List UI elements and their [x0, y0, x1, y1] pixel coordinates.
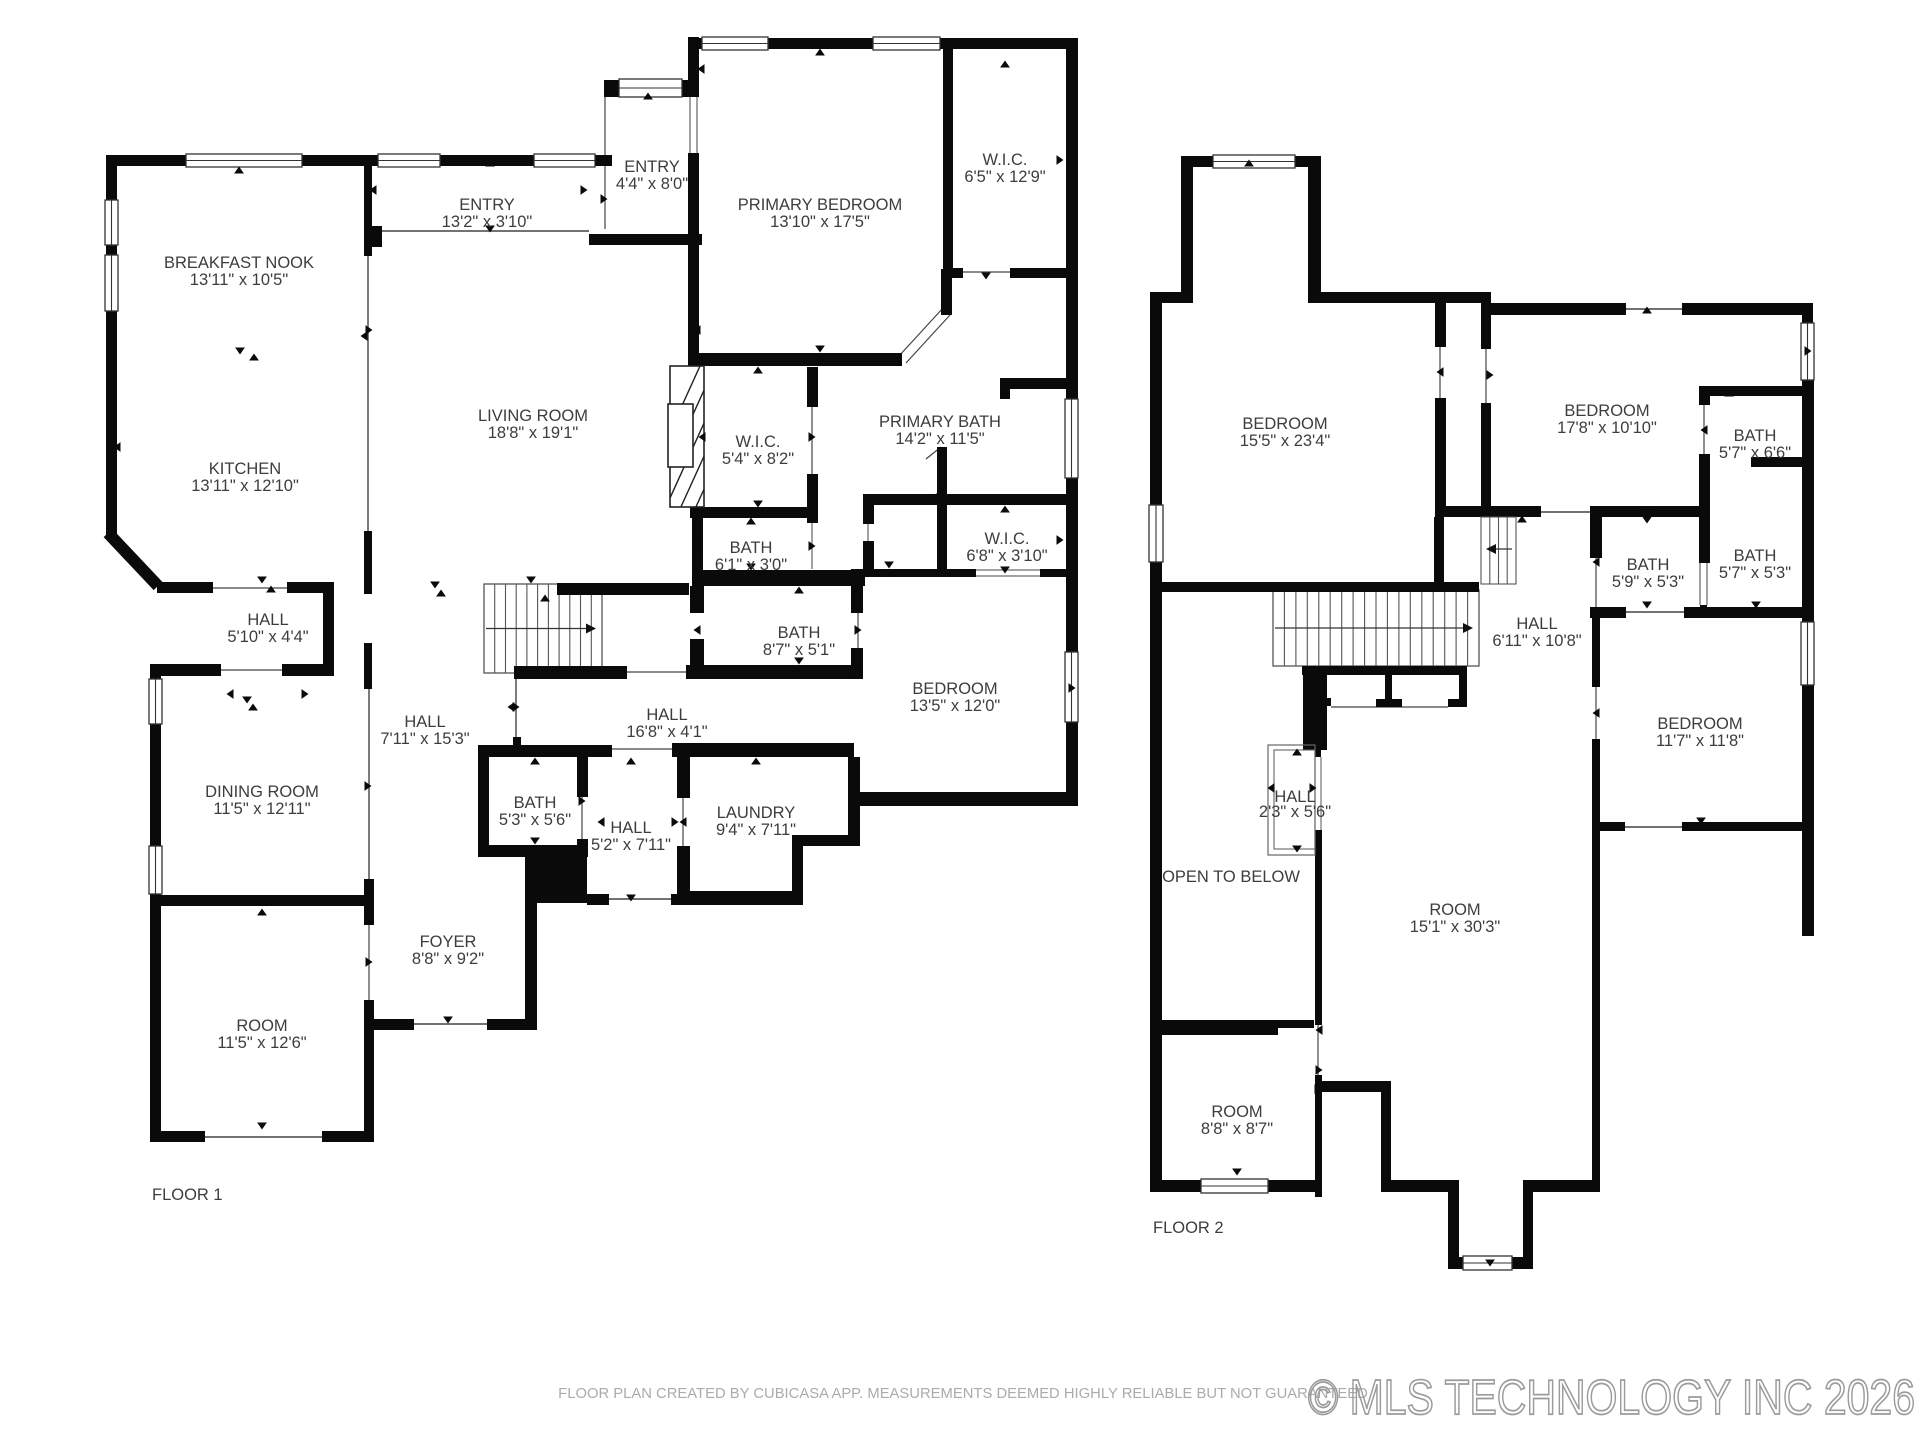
svg-text:13'11" x 10'5": 13'11" x 10'5": [190, 271, 289, 289]
svg-text:4'4" x 8'0": 4'4" x 8'0": [616, 175, 688, 193]
svg-text:KITCHEN: KITCHEN: [209, 460, 281, 478]
svg-text:FOYER: FOYER: [420, 933, 477, 951]
svg-text:FLOOR 1: FLOOR 1: [152, 1186, 223, 1204]
svg-text:13'5" x 12'0": 13'5" x 12'0": [910, 697, 1001, 715]
svg-text:HALL: HALL: [646, 706, 687, 724]
svg-text:HALL: HALL: [1516, 615, 1557, 633]
svg-text:BATH: BATH: [1627, 556, 1670, 574]
svg-text:PRIMARY BATH: PRIMARY BATH: [879, 413, 1001, 431]
svg-text:15'5" x 23'4": 15'5" x 23'4": [1240, 432, 1331, 450]
svg-text:18'8" x 19'1": 18'8" x 19'1": [488, 424, 579, 442]
svg-text:13'2" x 3'10": 13'2" x 3'10": [442, 213, 533, 231]
svg-text:BATH: BATH: [730, 539, 773, 557]
svg-text:8'8" x 9'2": 8'8" x 9'2": [412, 950, 484, 968]
svg-text:6'5" x 12'9": 6'5" x 12'9": [964, 168, 1045, 186]
svg-text:BEDROOM: BEDROOM: [1242, 415, 1327, 433]
svg-text:5'10" x 4'4": 5'10" x 4'4": [227, 628, 308, 646]
svg-text:HALL: HALL: [610, 819, 651, 837]
svg-text:8'7" x 5'1": 8'7" x 5'1": [763, 641, 835, 659]
svg-text:16'8" x 4'1": 16'8" x 4'1": [626, 723, 707, 741]
svg-text:HALL: HALL: [247, 611, 288, 629]
svg-text:BATH: BATH: [1734, 427, 1777, 445]
svg-text:11'5" x 12'11": 11'5" x 12'11": [213, 800, 310, 818]
svg-text:15'1" x 30'3": 15'1" x 30'3": [1410, 918, 1501, 936]
svg-text:W.I.C.: W.I.C.: [736, 433, 781, 451]
svg-text:HALL: HALL: [404, 713, 445, 731]
svg-text:5'4" x 8'2": 5'4" x 8'2": [722, 450, 794, 468]
svg-text:5'7" x 6'6": 5'7" x 6'6": [1719, 444, 1791, 462]
svg-text:5'2" x 7'11": 5'2" x 7'11": [591, 836, 671, 854]
svg-text:DINING ROOM: DINING ROOM: [205, 783, 319, 801]
svg-text:BEDROOM: BEDROOM: [1657, 715, 1742, 733]
svg-text:11'7" x 11'8": 11'7" x 11'8": [1656, 732, 1744, 750]
svg-text:5'9" x 5'3": 5'9" x 5'3": [1612, 573, 1684, 591]
svg-text:FLOOR 2: FLOOR 2: [1153, 1219, 1224, 1237]
svg-text:W.I.C.: W.I.C.: [983, 151, 1028, 169]
svg-text:BATH: BATH: [778, 624, 821, 642]
svg-text:8'8" x 8'7": 8'8" x 8'7": [1201, 1120, 1273, 1138]
svg-text:17'8" x 10'10": 17'8" x 10'10": [1557, 419, 1657, 437]
svg-text:5'7" x 5'3": 5'7" x 5'3": [1719, 564, 1791, 582]
svg-text:BREAKFAST NOOK: BREAKFAST NOOK: [164, 254, 314, 272]
svg-text:BEDROOM: BEDROOM: [912, 680, 997, 698]
svg-text:13'11" x 12'10": 13'11" x 12'10": [191, 477, 299, 495]
svg-text:BATH: BATH: [1734, 547, 1777, 565]
svg-text:© MLS TECHNOLOGY INC 2026: © MLS TECHNOLOGY INC 2026: [1308, 1371, 1915, 1425]
svg-text:BATH: BATH: [514, 794, 557, 812]
svg-text:OPEN TO BELOW: OPEN TO BELOW: [1162, 868, 1300, 886]
svg-text:7'11" x 15'3": 7'11" x 15'3": [380, 730, 469, 748]
svg-text:BEDROOM: BEDROOM: [1564, 402, 1649, 420]
svg-text:6'11" x 10'8": 6'11" x 10'8": [1492, 632, 1581, 650]
svg-text:W.I.C.: W.I.C.: [985, 530, 1030, 548]
svg-text:2'3" x 5'6": 2'3" x 5'6": [1259, 803, 1331, 821]
svg-text:5'3" x 5'6": 5'3" x 5'6": [499, 811, 571, 829]
svg-text:ROOM: ROOM: [236, 1017, 287, 1035]
svg-text:9'4" x 7'11": 9'4" x 7'11": [716, 821, 796, 839]
svg-text:ENTRY: ENTRY: [459, 196, 515, 214]
svg-text:ROOM: ROOM: [1211, 1103, 1262, 1121]
svg-text:LAUNDRY: LAUNDRY: [717, 804, 796, 822]
svg-text:14'2" x 11'5": 14'2" x 11'5": [895, 430, 984, 448]
svg-text:FLOOR PLAN CREATED BY CUBICASA: FLOOR PLAN CREATED BY CUBICASA APP. MEAS…: [558, 1386, 1368, 1402]
svg-text:13'10" x 17'5": 13'10" x 17'5": [770, 213, 870, 231]
svg-text:ENTRY: ENTRY: [624, 158, 680, 176]
svg-text:PRIMARY BEDROOM: PRIMARY BEDROOM: [738, 196, 902, 214]
svg-text:6'1" x 3'0": 6'1" x 3'0": [715, 556, 787, 574]
svg-text:ROOM: ROOM: [1429, 901, 1480, 919]
svg-text:6'8" x 3'10": 6'8" x 3'10": [966, 547, 1047, 565]
svg-text:11'5" x 12'6": 11'5" x 12'6": [217, 1034, 306, 1052]
svg-text:LIVING ROOM: LIVING ROOM: [478, 407, 588, 425]
